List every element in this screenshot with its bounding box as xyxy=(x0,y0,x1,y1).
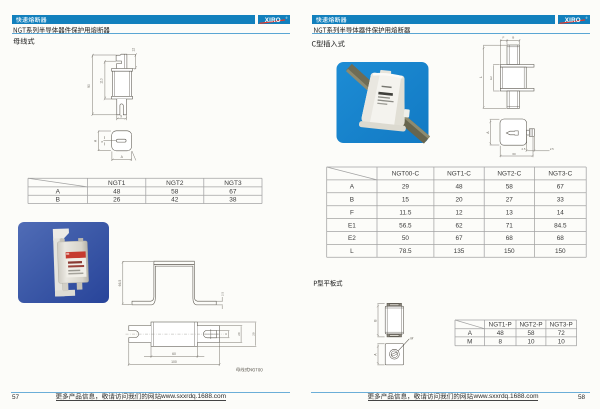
svg-text:E2: E2 xyxy=(348,235,356,242)
svg-text:A: A xyxy=(56,188,61,195)
svg-text:NGT1-C: NGT1-C xyxy=(447,171,471,178)
svg-text:42: 42 xyxy=(171,197,179,204)
svg-text:58: 58 xyxy=(506,184,514,191)
svg-text:13: 13 xyxy=(506,209,514,216)
svg-text:NGT1-P: NGT1-P xyxy=(489,322,512,329)
svg-text:84.5: 84.5 xyxy=(554,222,567,229)
svg-text:10: 10 xyxy=(558,339,566,346)
svg-text:100: 100 xyxy=(171,360,177,364)
svg-text:A: A xyxy=(486,131,490,134)
svg-text:A: A xyxy=(93,139,97,142)
svg-text:NGT2: NGT2 xyxy=(166,180,184,187)
svg-text:M: M xyxy=(410,336,413,340)
svg-text:90: 90 xyxy=(87,84,91,88)
svg-text:M: M xyxy=(467,339,472,346)
svg-text:60: 60 xyxy=(512,152,516,156)
svg-text:F: F xyxy=(502,36,504,40)
svg-text:B: B xyxy=(350,196,354,203)
svg-text:72: 72 xyxy=(558,330,566,337)
svg-text:29: 29 xyxy=(402,184,410,191)
svg-text:9: 9 xyxy=(120,115,122,119)
svg-text:71: 71 xyxy=(506,222,514,229)
svg-text:62: 62 xyxy=(455,222,463,229)
svg-text:9: 9 xyxy=(100,141,104,143)
svg-text:E1: E1 xyxy=(348,222,356,229)
svg-text:B: B xyxy=(512,36,514,40)
svg-text:12: 12 xyxy=(132,48,136,52)
svg-text:67: 67 xyxy=(229,188,237,195)
svg-text:58: 58 xyxy=(527,330,535,337)
svg-text:8: 8 xyxy=(498,339,502,346)
svg-text:A: A xyxy=(373,353,377,356)
svg-text:2.5: 2.5 xyxy=(220,291,224,296)
svg-text:78.5: 78.5 xyxy=(399,248,412,255)
svg-text:150: 150 xyxy=(504,248,515,255)
svg-text:2.5: 2.5 xyxy=(522,147,526,151)
svg-text:38: 38 xyxy=(229,197,237,204)
svg-text:58: 58 xyxy=(171,188,179,195)
svg-text:110: 110 xyxy=(100,78,104,84)
svg-text:67: 67 xyxy=(455,235,463,242)
svg-text:68: 68 xyxy=(506,235,514,242)
svg-text:48: 48 xyxy=(455,184,463,191)
svg-text:NGT1: NGT1 xyxy=(108,180,126,187)
svg-text:NGT3-P: NGT3-P xyxy=(550,322,573,329)
svg-text:150: 150 xyxy=(555,248,566,255)
svg-text:26: 26 xyxy=(113,197,121,204)
svg-text:135: 135 xyxy=(454,248,465,255)
svg-text:12: 12 xyxy=(455,209,463,216)
svg-text:67: 67 xyxy=(557,184,565,191)
svg-text:B: B xyxy=(56,197,60,204)
svg-text:66.5: 66.5 xyxy=(118,280,122,287)
svg-text:NGT3-C: NGT3-C xyxy=(548,171,572,178)
svg-text:E2: E2 xyxy=(489,76,493,80)
svg-text:48: 48 xyxy=(113,188,121,195)
svg-text:A: A xyxy=(121,155,124,159)
svg-text:20: 20 xyxy=(237,332,241,336)
svg-text:NGT2-C: NGT2-C xyxy=(497,171,521,178)
svg-text:11.5: 11.5 xyxy=(399,209,411,216)
svg-text:NGT2-P: NGT2-P xyxy=(519,322,542,329)
svg-text:14: 14 xyxy=(557,209,565,216)
svg-text:68: 68 xyxy=(557,235,565,242)
svg-text:15: 15 xyxy=(402,196,410,203)
svg-text:29: 29 xyxy=(251,332,255,336)
svg-text:56.5: 56.5 xyxy=(399,222,412,229)
svg-text:L: L xyxy=(479,76,483,78)
svg-text:L: L xyxy=(350,248,354,255)
svg-text:2.5: 2.5 xyxy=(550,147,554,151)
svg-text:A: A xyxy=(468,330,473,337)
svg-text:NGT00-C: NGT00-C xyxy=(392,171,420,178)
svg-text:60: 60 xyxy=(172,352,176,356)
svg-text:48: 48 xyxy=(497,330,505,337)
svg-text:A: A xyxy=(350,184,355,191)
svg-text:27: 27 xyxy=(506,196,514,203)
svg-text:50: 50 xyxy=(402,235,410,242)
svg-text:B: B xyxy=(373,319,377,322)
svg-text:10: 10 xyxy=(527,339,535,346)
svg-text:33: 33 xyxy=(557,196,565,203)
svg-text:20: 20 xyxy=(455,196,463,203)
svg-text:F: F xyxy=(350,209,354,216)
svg-text:9: 9 xyxy=(224,333,228,335)
svg-text:NGT3: NGT3 xyxy=(224,180,242,187)
